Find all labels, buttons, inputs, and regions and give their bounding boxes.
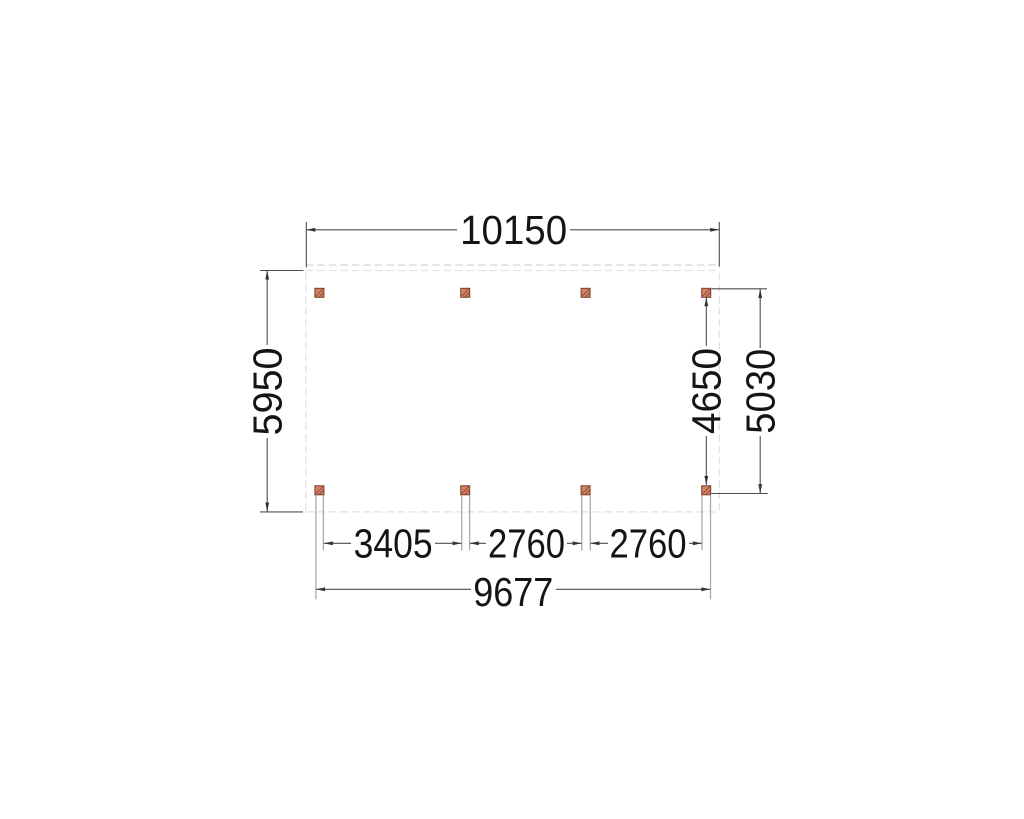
svg-text:5950: 5950 <box>244 348 290 436</box>
svg-text:2760: 2760 <box>488 520 565 566</box>
svg-text:5030: 5030 <box>737 349 783 434</box>
svg-text:10150: 10150 <box>460 207 567 253</box>
svg-text:3405: 3405 <box>354 520 433 566</box>
svg-text:4650: 4650 <box>683 348 729 434</box>
svg-text:2760: 2760 <box>610 520 687 566</box>
svg-text:9677: 9677 <box>473 569 553 615</box>
